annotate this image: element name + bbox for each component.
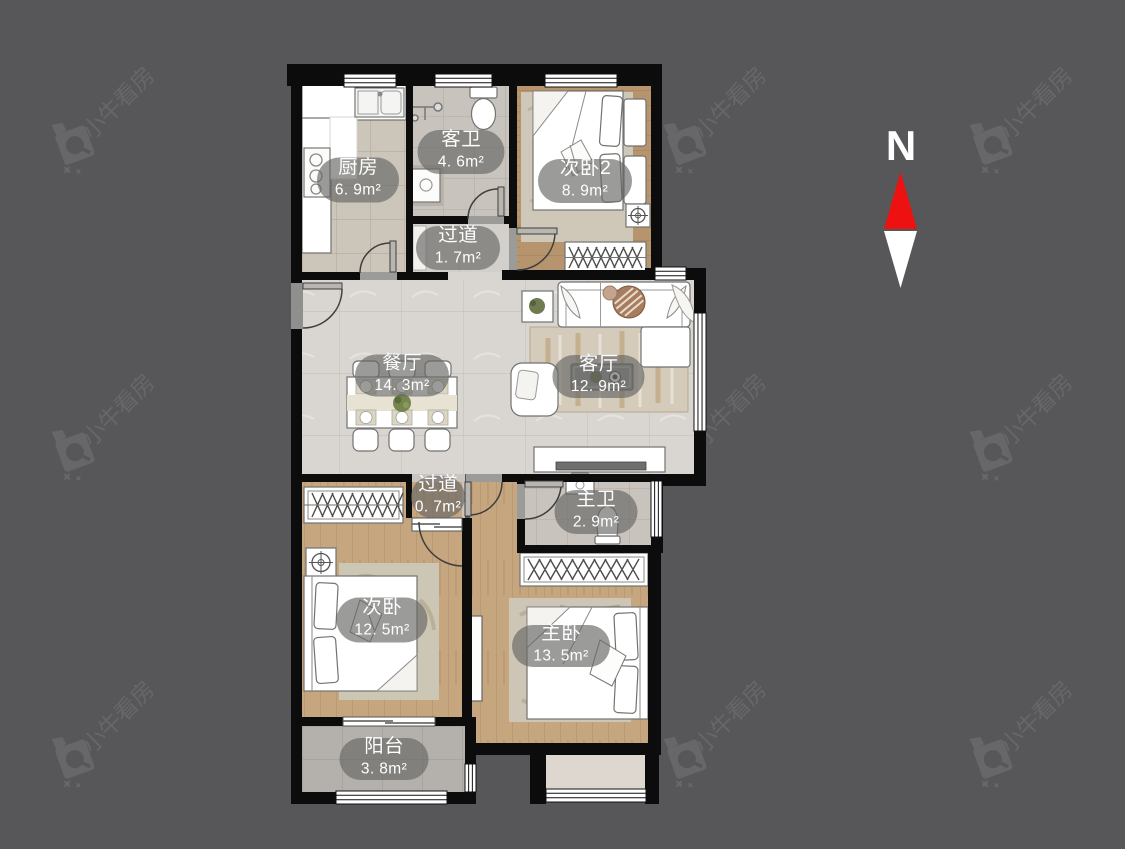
svg-text:2: 2 [600,157,611,179]
svg-text:3. 8m²: 3. 8m² [361,761,407,778]
svg-text:2. 9m²: 2. 9m² [573,514,619,531]
svg-text:8. 9m²: 8. 9m² [562,183,608,200]
svg-text:13. 5m²: 13. 5m² [533,648,588,665]
svg-text:1. 7m²: 1. 7m² [435,250,481,267]
svg-text:4. 6m²: 4. 6m² [438,154,484,171]
svg-text:N: N [886,122,916,169]
svg-text:6. 9m²: 6. 9m² [335,182,381,199]
svg-text:12. 9m²: 12. 9m² [571,378,626,395]
svg-text:12. 5m²: 12. 5m² [354,622,409,639]
svg-text:0. 7m²: 0. 7m² [415,499,461,516]
svg-text:14. 3m²: 14. 3m² [374,377,429,394]
